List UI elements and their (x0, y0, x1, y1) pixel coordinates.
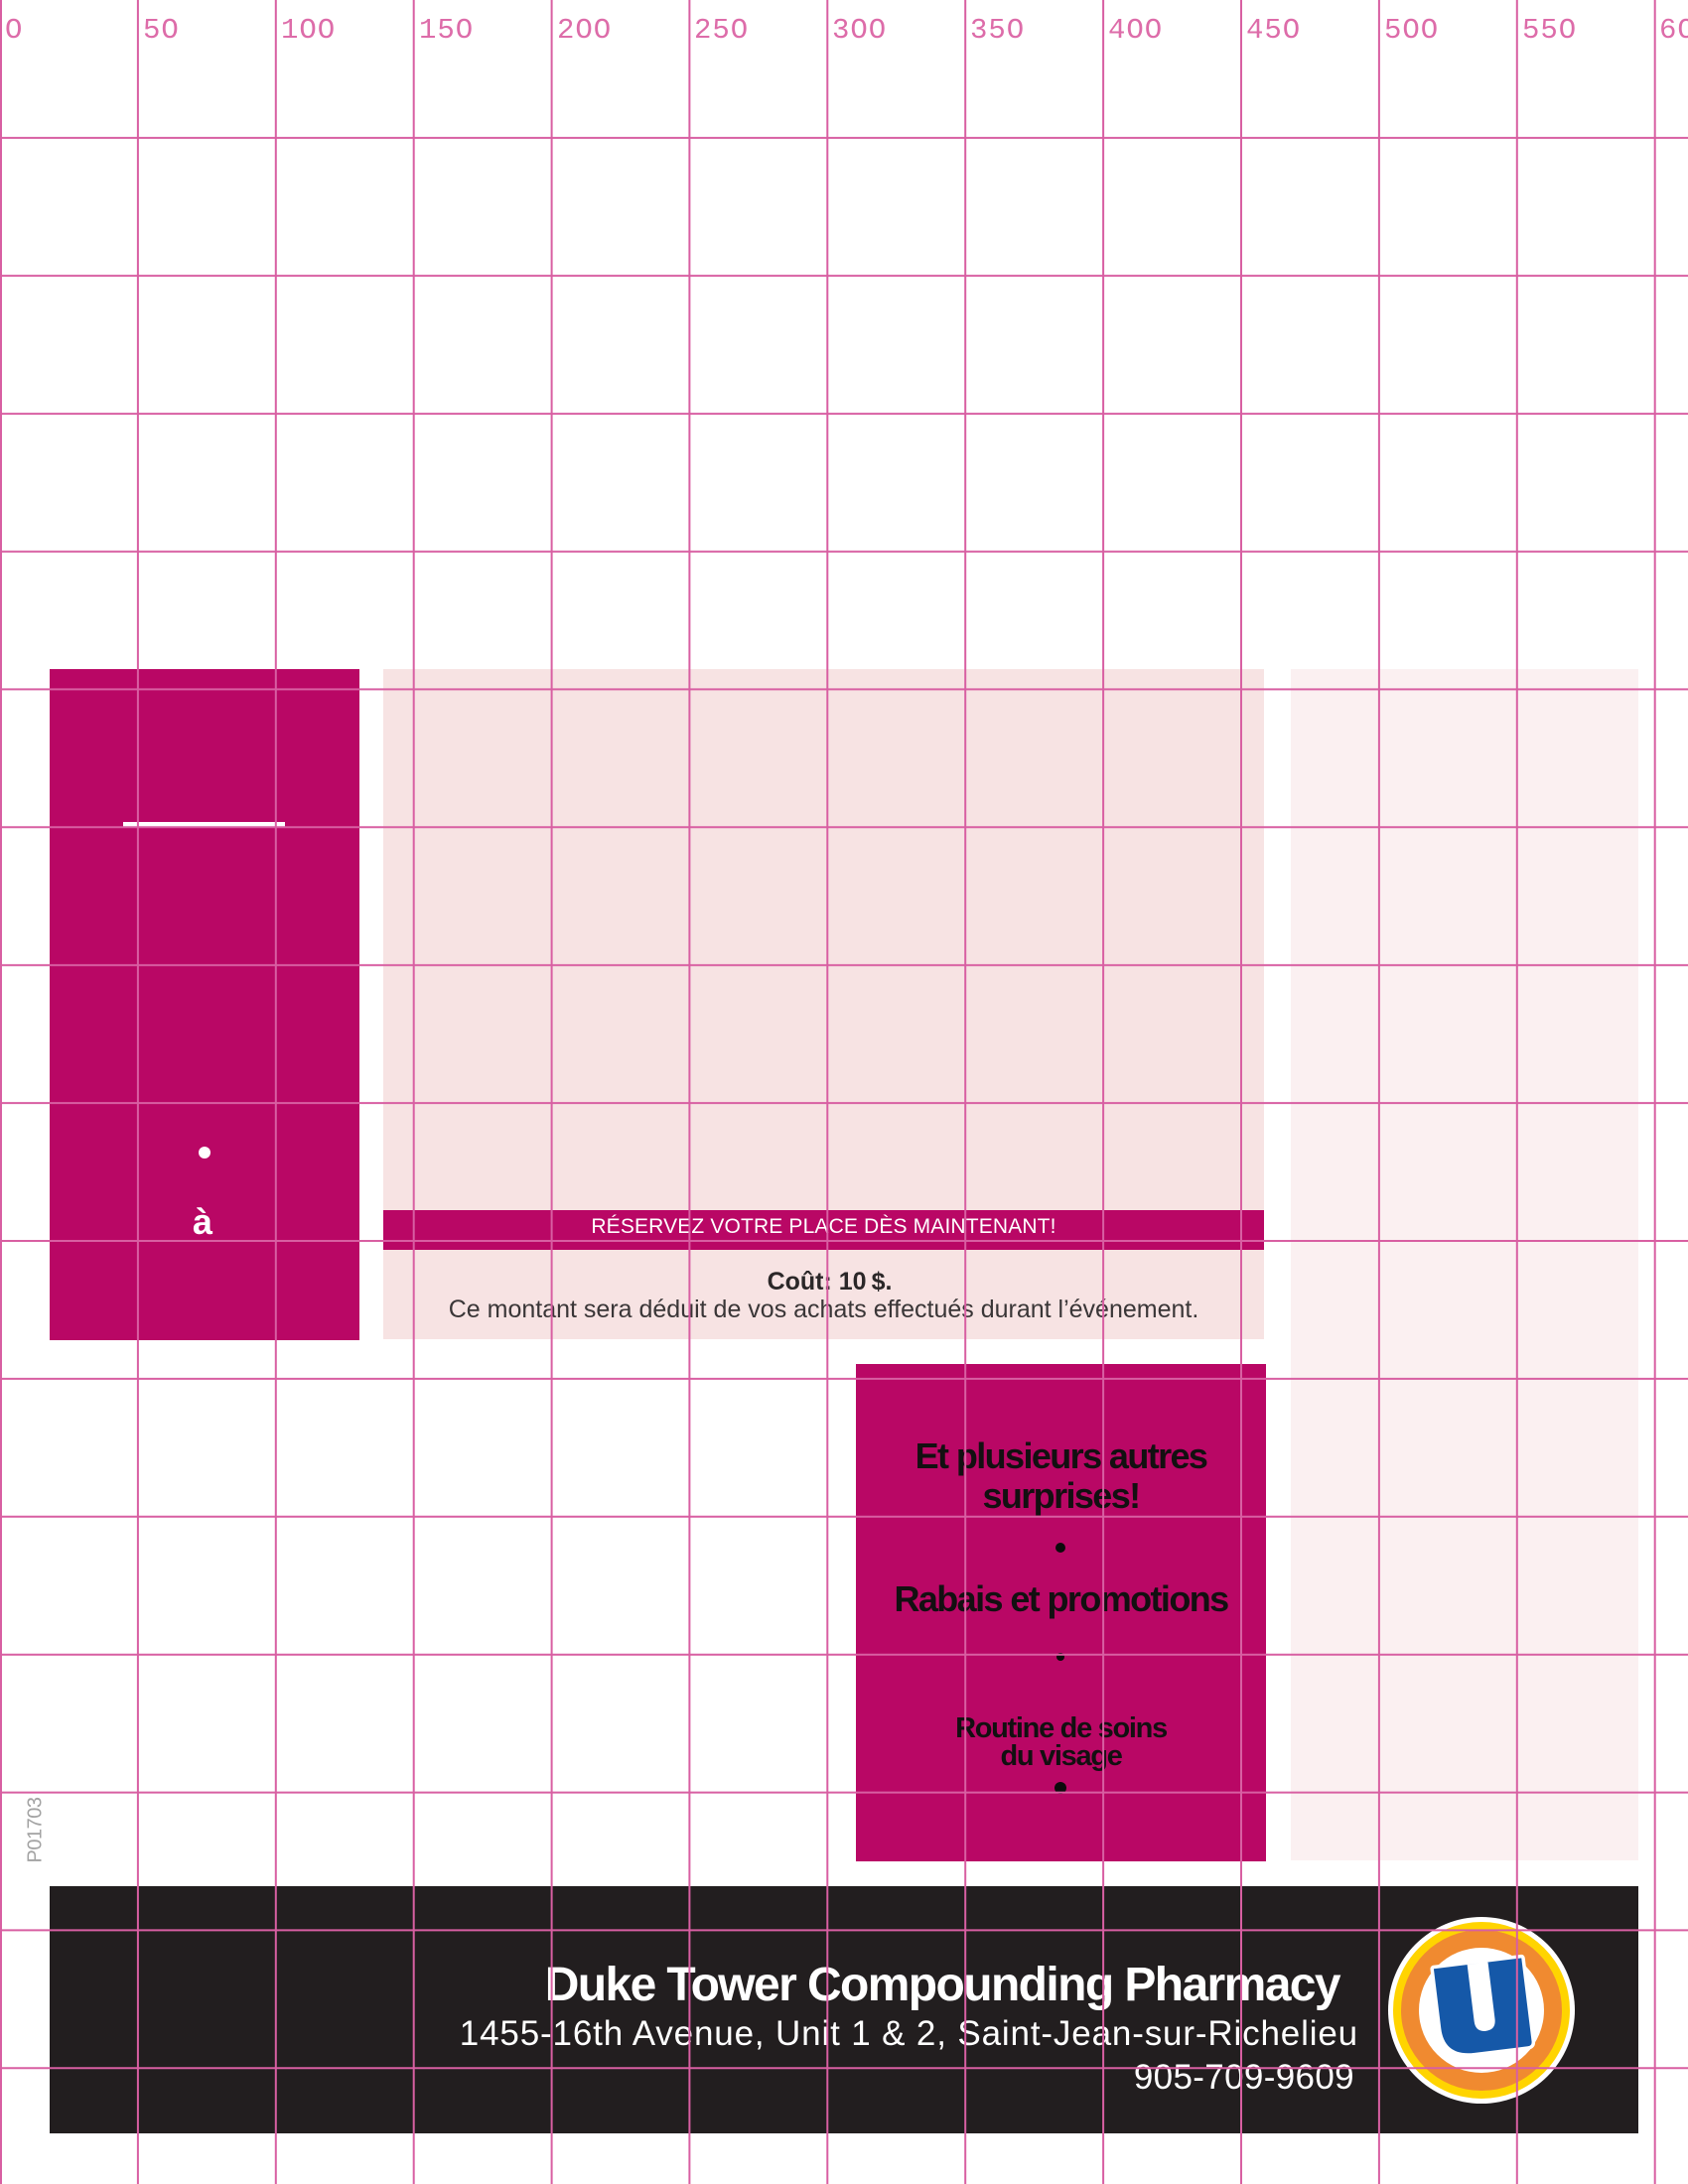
svg-text:35O: 35O (970, 14, 1025, 47)
svg-text:55O: 55O (1522, 14, 1577, 47)
svg-text:5OO: 5OO (1384, 14, 1439, 47)
svg-text:15O: 15O (419, 14, 474, 47)
svg-text:45O: 45O (1246, 14, 1301, 47)
svg-text:O: O (5, 14, 23, 47)
svg-text:6OO: 6OO (1659, 14, 1688, 47)
svg-text:25O: 25O (694, 14, 749, 47)
svg-text:3OO: 3OO (832, 14, 887, 47)
svg-text:1OO: 1OO (281, 14, 336, 47)
svg-text:4OO: 4OO (1108, 14, 1163, 47)
svg-text:5O: 5O (143, 14, 180, 47)
svg-text:2OO: 2OO (557, 14, 612, 47)
